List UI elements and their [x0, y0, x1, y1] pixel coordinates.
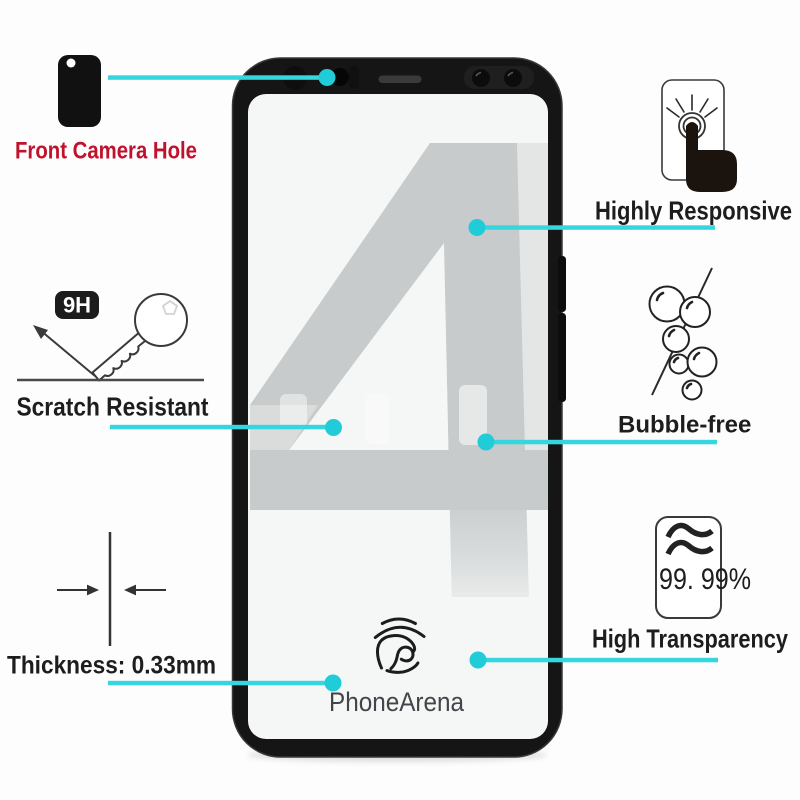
svg-text:PhoneArena: PhoneArena	[329, 687, 464, 717]
svg-text:9H: 9H	[63, 293, 91, 318]
svg-text:Bubble-free: Bubble-free	[618, 412, 751, 439]
svg-text:Front Camera Hole: Front Camera Hole	[15, 138, 197, 165]
svg-text:Scratch Resistant: Scratch Resistant	[17, 392, 209, 422]
svg-text:99. 99%: 99. 99%	[659, 563, 751, 596]
svg-text:High Transparency: High Transparency	[592, 624, 788, 654]
svg-text:Thickness: 0.33mm: Thickness: 0.33mm	[7, 651, 216, 679]
svg-text:Highly Responsive: Highly Responsive	[595, 196, 792, 226]
